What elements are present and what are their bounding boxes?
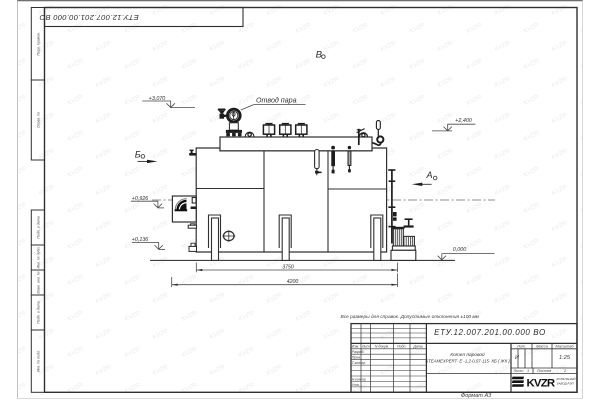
svg-text:Взам. инв. №: Взам. инв. №	[37, 271, 41, 293]
svg-text:Разраб.: Разраб.	[352, 350, 365, 354]
svg-text:KVZR: KVZR	[527, 377, 555, 389]
svg-text:А: А	[426, 170, 433, 180]
svg-text:Формат А3: Формат А3	[461, 393, 492, 399]
svg-text:Пров.: Пров.	[352, 356, 361, 360]
svg-text:Подп. и дата: Подп. и дата	[37, 216, 41, 239]
svg-text:STEAMEXPERT- Е -1,2-0,07-115-: STEAMEXPERT- Е -1,2-0,07-115- КБ ( ЖК )	[425, 358, 510, 363]
svg-text:Т.контр.: Т.контр.	[352, 361, 366, 365]
svg-text:Б: Б	[135, 150, 141, 160]
svg-text:Лит.: Лит.	[516, 344, 526, 349]
svg-text:Утв.: Утв.	[352, 383, 360, 387]
svg-text:Отвод пара: Отвод пара	[256, 97, 297, 105]
svg-text:ЗАВОД РЭП: ЗАВОД РЭП	[557, 382, 575, 386]
svg-text:Н.контр.: Н.контр.	[352, 377, 367, 381]
svg-text:Листов: Листов	[536, 368, 551, 373]
svg-text:И: И	[515, 355, 519, 361]
svg-text:Инв. № подл.: Инв. № подл.	[37, 350, 41, 372]
svg-text:ЕТУ.12.007.201.00.000 ВО: ЕТУ.12.007.201.00.000 ВО	[39, 13, 139, 22]
svg-text:1:25: 1:25	[559, 355, 571, 361]
svg-text:Все размеры для справок. Допу: Все размеры для справок. Допустимые откл…	[341, 314, 480, 320]
svg-text:В: В	[316, 50, 323, 61]
svg-text:Дата: Дата	[412, 345, 422, 349]
svg-text:Подп. и дата: Подп. и дата	[37, 301, 41, 324]
svg-text:Лист: Лист	[361, 345, 371, 349]
svg-text:4200: 4200	[287, 279, 299, 285]
svg-text:N докум.: N докум.	[375, 345, 389, 349]
svg-text:Подп.: Подп.	[397, 345, 406, 349]
svg-text:Инв. № дубл.: Инв. № дубл.	[37, 246, 41, 268]
svg-text:КОТЕЛЬНЫЙ: КОТЕЛЬНЫЙ	[557, 377, 577, 381]
svg-text:1: 1	[527, 368, 529, 373]
svg-text:0,000: 0,000	[453, 247, 467, 253]
svg-text:Перв. примен.: Перв. примен.	[37, 32, 41, 56]
svg-text:Котел паровой: Котел паровой	[450, 351, 485, 358]
svg-text:Масса: Масса	[536, 344, 548, 349]
svg-text:Изм.: Изм.	[352, 345, 359, 349]
svg-text:Справ. №: Справ. №	[37, 112, 41, 128]
svg-text:Масштаб: Масштаб	[555, 344, 574, 349]
svg-text:Лист: Лист	[513, 368, 525, 373]
svg-text:ЕТУ.12.007.201.00.000 ВО: ЕТУ.12.007.201.00.000 ВО	[434, 328, 546, 337]
svg-text:+2,400: +2,400	[455, 118, 472, 124]
svg-text:3750: 3750	[282, 264, 294, 270]
